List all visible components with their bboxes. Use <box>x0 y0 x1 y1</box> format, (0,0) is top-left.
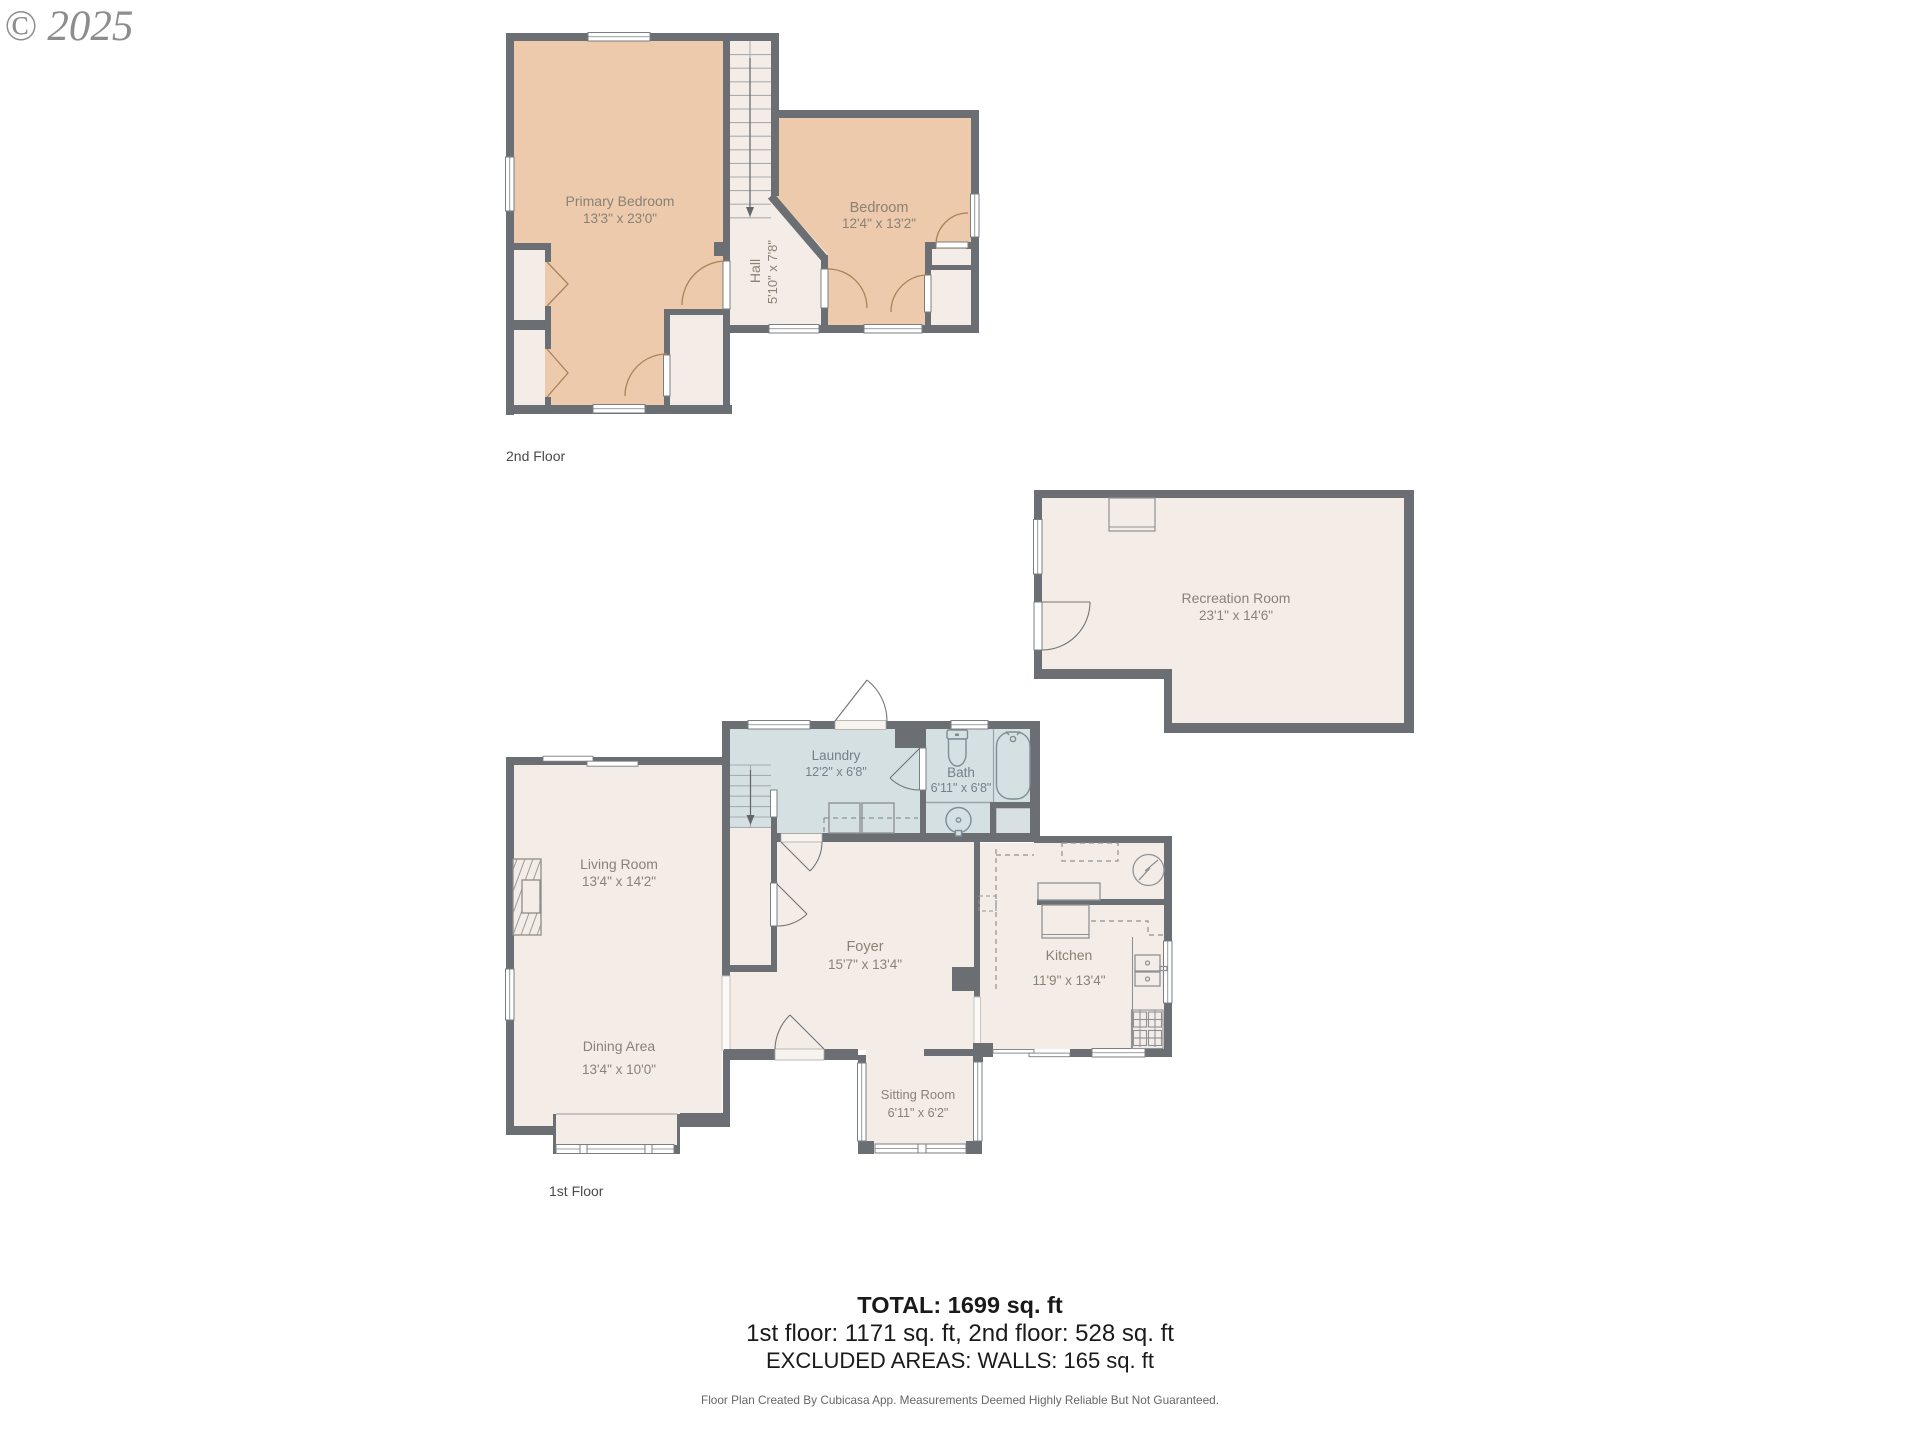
svg-text:Living Room: Living Room <box>580 856 658 872</box>
svg-text:13'4" x 14'2": 13'4" x 14'2" <box>582 874 656 889</box>
svg-text:Primary Bedroom: Primary Bedroom <box>566 193 675 209</box>
svg-text:13'4" x 10'0": 13'4" x 10'0" <box>582 1062 656 1077</box>
svg-text:Sitting Room: Sitting Room <box>881 1087 955 1102</box>
svg-text:EXCLUDED AREAS: WALLS: 165 sq.: EXCLUDED AREAS: WALLS: 165 sq. ft <box>766 1348 1154 1373</box>
svg-text:Kitchen: Kitchen <box>1046 947 1093 963</box>
svg-text:Laundry: Laundry <box>812 748 861 763</box>
svg-text:Bedroom: Bedroom <box>850 200 909 216</box>
svg-text:Bath: Bath <box>947 765 975 780</box>
svg-text:15'7" x 13'4": 15'7" x 13'4" <box>828 957 902 972</box>
svg-text:1st Floor: 1st Floor <box>549 1183 604 1199</box>
svg-text:© 2025: © 2025 <box>4 3 133 50</box>
svg-text:6'11" x 6'2": 6'11" x 6'2" <box>888 1106 949 1120</box>
svg-text:12'2" x 6'8": 12'2" x 6'8" <box>805 765 867 779</box>
svg-text:TOTAL: 1699 sq. ft: TOTAL: 1699 sq. ft <box>857 1292 1063 1318</box>
svg-text:13'3" x 23'0": 13'3" x 23'0" <box>583 211 657 226</box>
svg-text:Recreation Room: Recreation Room <box>1182 590 1291 606</box>
svg-text:12'4" x 13'2": 12'4" x 13'2" <box>842 216 916 231</box>
svg-text:6'11" x 6'8": 6'11" x 6'8" <box>931 781 992 795</box>
svg-text:11'9" x 13'4": 11'9" x 13'4" <box>1032 973 1105 988</box>
svg-text:23'1" x 14'6": 23'1" x 14'6" <box>1199 608 1273 623</box>
svg-text:Foyer: Foyer <box>846 939 883 955</box>
svg-text:Dining Area: Dining Area <box>583 1038 656 1054</box>
svg-text:Hall: Hall <box>747 259 763 283</box>
svg-text:5'10" x 7'8": 5'10" x 7'8" <box>765 240 780 304</box>
svg-text:2nd Floor: 2nd Floor <box>506 448 565 464</box>
svg-text:1st floor: 1171 sq. ft, 2nd fl: 1st floor: 1171 sq. ft, 2nd floor: 528 s… <box>746 1320 1174 1347</box>
svg-text:Floor Plan Created By Cubicasa: Floor Plan Created By Cubicasa App. Meas… <box>701 1393 1219 1407</box>
